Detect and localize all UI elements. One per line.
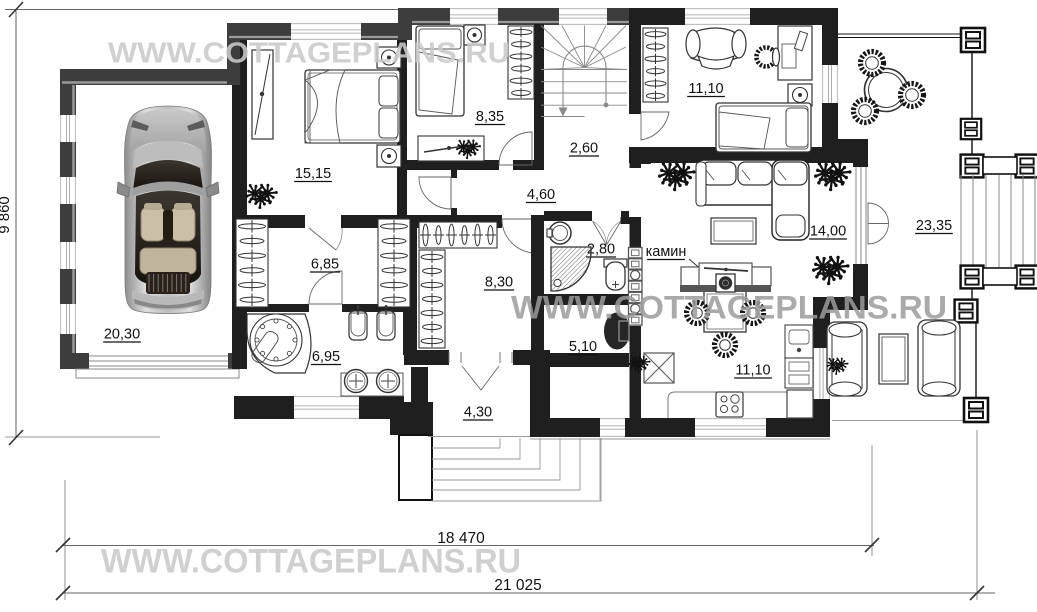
svg-text:20,30: 20,30 xyxy=(104,327,140,343)
svg-text:8,30: 8,30 xyxy=(485,275,513,291)
svg-text:WWW.COTTAGEPLANS.RU: WWW.COTTAGEPLANS.RU xyxy=(101,543,521,581)
svg-text:WWW.COTTAGEPLANS.RU: WWW.COTTAGEPLANS.RU xyxy=(108,38,510,70)
svg-text:4,30: 4,30 xyxy=(464,405,492,421)
svg-text:9 860: 9 860 xyxy=(0,196,13,234)
svg-text:WWW.COTTAGEPLANS.RU: WWW.COTTAGEPLANS.RU xyxy=(511,290,947,326)
svg-text:11,10: 11,10 xyxy=(735,363,770,379)
svg-text:23,35: 23,35 xyxy=(916,218,952,234)
svg-text:8,35: 8,35 xyxy=(476,109,504,125)
svg-text:14,00: 14,00 xyxy=(810,224,846,240)
svg-text:4,60: 4,60 xyxy=(527,187,555,203)
svg-text:6,95: 6,95 xyxy=(312,349,340,365)
svg-text:15,15: 15,15 xyxy=(295,166,331,182)
svg-text:6,85: 6,85 xyxy=(311,257,339,273)
svg-text:5,10: 5,10 xyxy=(569,339,597,355)
svg-text:2,60: 2,60 xyxy=(570,141,598,157)
svg-text:11,10: 11,10 xyxy=(688,81,723,97)
svg-text:камин: камин xyxy=(646,244,687,260)
